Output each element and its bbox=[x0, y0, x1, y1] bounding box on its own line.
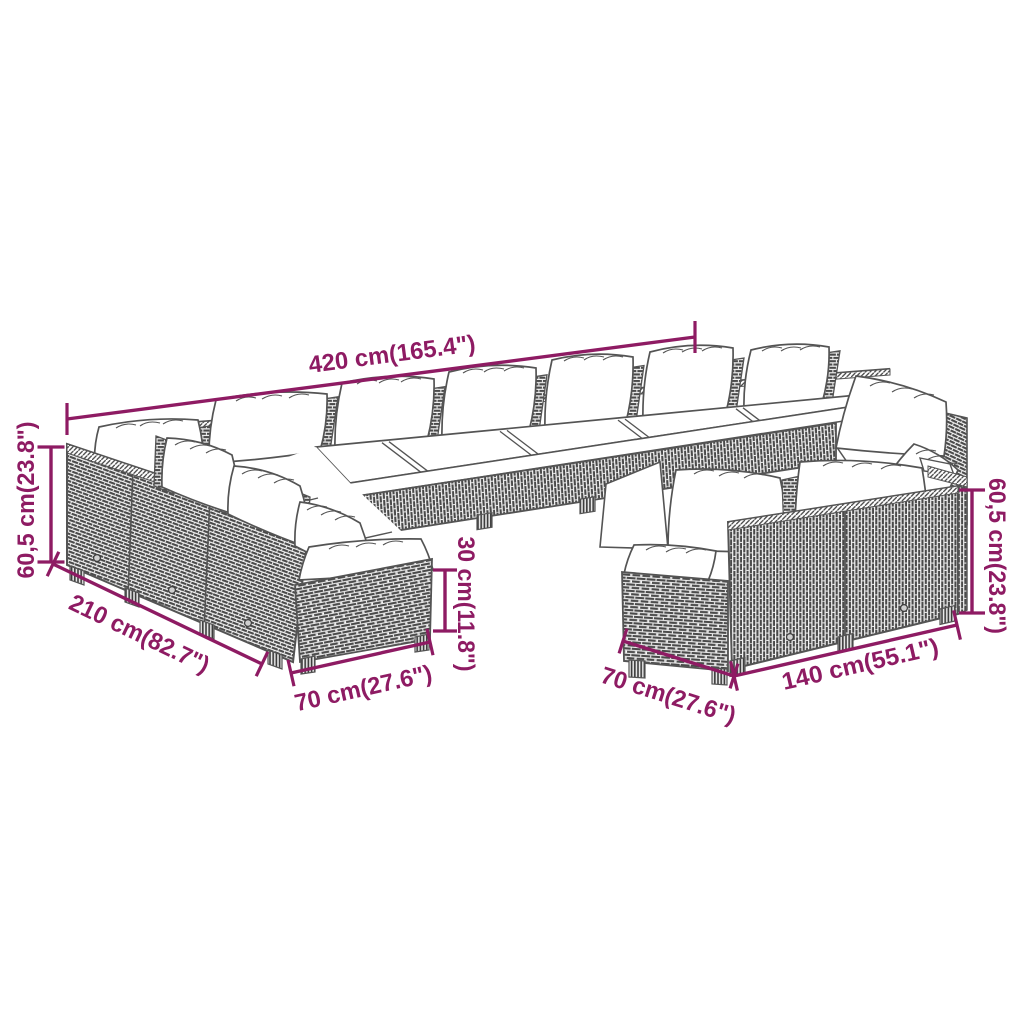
svg-text:60,5 cm(23.8"): 60,5 cm(23.8") bbox=[13, 422, 40, 579]
svg-text:60,5 cm(23.8"): 60,5 cm(23.8") bbox=[983, 478, 1010, 634]
svg-text:30 cm(11.8"): 30 cm(11.8") bbox=[452, 537, 479, 672]
